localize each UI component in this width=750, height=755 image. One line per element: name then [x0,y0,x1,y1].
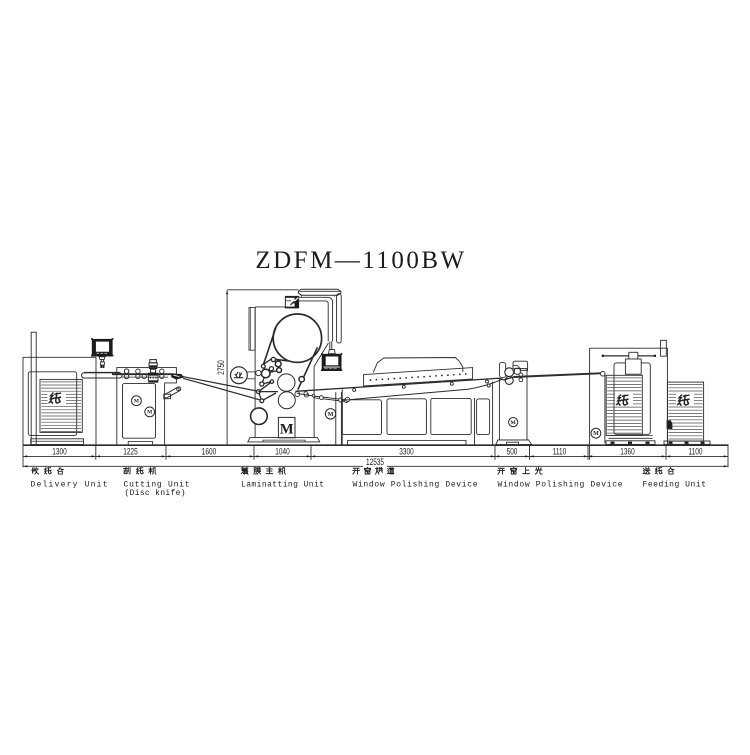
svg-text:M: M [511,420,517,426]
svg-text:(Disc knife): (Disc knife) [125,489,186,498]
svg-text:ZDFM—1100BW: ZDFM—1100BW [255,247,466,274]
svg-text:1300: 1300 [52,447,67,457]
svg-text:M: M [280,422,294,438]
svg-text:M: M [593,431,599,437]
svg-text:1100: 1100 [689,447,703,457]
svg-text:1040: 1040 [275,447,290,457]
svg-text:Delivery Unit: Delivery Unit [31,481,108,490]
svg-text:M: M [147,410,152,416]
svg-text:Window Polishing Device: Window Polishing Device [353,481,478,490]
svg-text:12535: 12535 [366,457,385,467]
svg-text:Feeding Unit: Feeding Unit [643,481,707,490]
svg-text:3300: 3300 [399,447,414,457]
svg-text:500: 500 [507,447,518,457]
svg-text:1110: 1110 [553,447,567,457]
svg-text:1600: 1600 [202,447,217,457]
svg-text:Window Polishing Device: Window Polishing Device [498,481,623,490]
svg-text:1360: 1360 [620,447,635,457]
svg-text:2750: 2750 [216,360,226,375]
svg-text:M: M [134,399,139,405]
svg-text:M: M [328,411,334,418]
svg-text:Laminatting Unit: Laminatting Unit [241,481,324,490]
svg-text:1225: 1225 [123,447,138,457]
